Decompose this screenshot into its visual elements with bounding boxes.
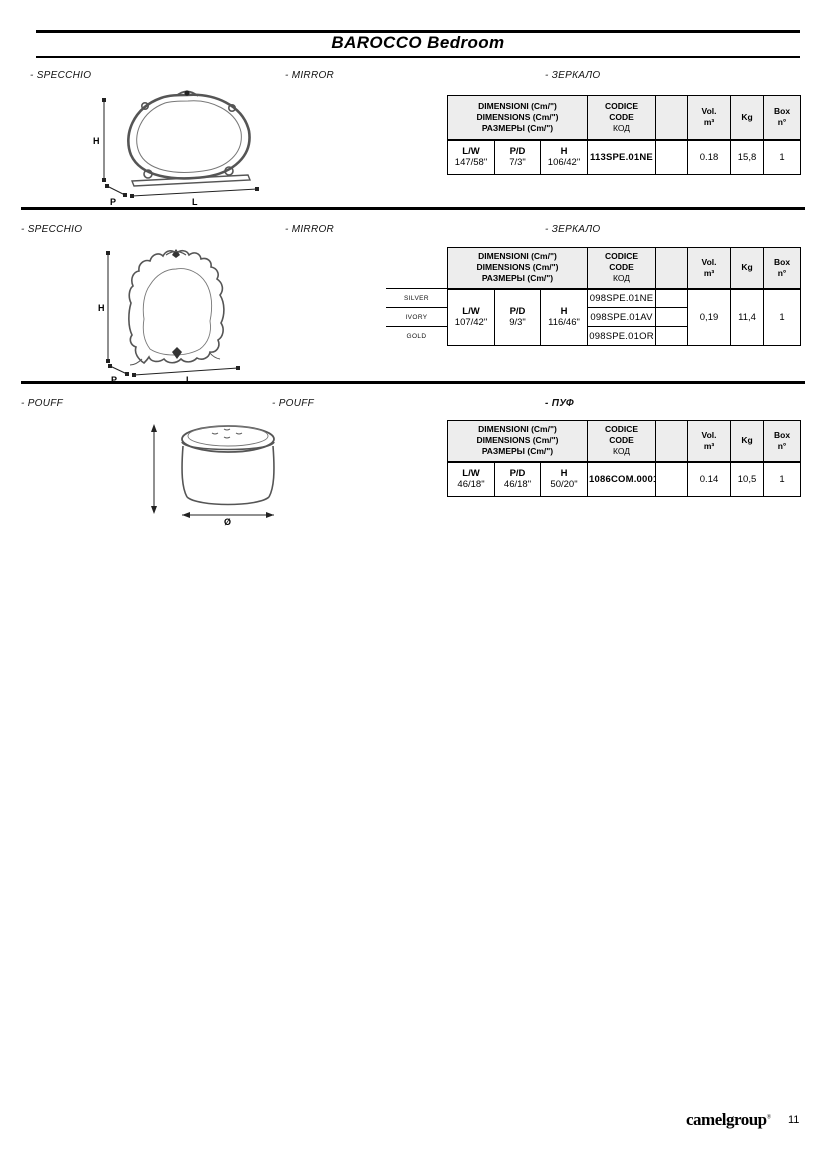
box-header-line: Box [765, 257, 799, 268]
h-label: H [542, 468, 586, 479]
pd-label: P/D [496, 306, 539, 317]
volume-header: Vol. m³ [688, 248, 731, 289]
p-dim-end [108, 364, 112, 368]
code-header-line: CODE [589, 435, 654, 446]
l-dim-end [236, 366, 240, 370]
code-header-line: КОД [589, 123, 654, 134]
h-value: 106/42" [542, 157, 586, 168]
p-dimension-label: P [110, 197, 116, 206]
code-header-line: КОД [589, 446, 654, 457]
volume-header: Vol. m³ [688, 96, 731, 140]
l-dimension-line [132, 189, 257, 196]
box-header: Box n° [764, 248, 801, 289]
section-divider [21, 207, 805, 210]
empty-header-cell [656, 248, 688, 289]
lw-cell: L/W 147/58" [448, 140, 495, 175]
h-value: 50/20" [542, 479, 586, 490]
code-header-line: CODE [589, 112, 654, 123]
volume-header-line: Vol. [689, 106, 729, 117]
mirror-frame-inner [137, 101, 242, 173]
product-code-silver: 098SPE.01NE [588, 289, 656, 308]
pd-cell: P/D 7/3" [495, 140, 541, 175]
pd-label: P/D [496, 146, 539, 157]
code-header-line: CODE [589, 262, 654, 273]
section-divider [21, 381, 805, 384]
h-label: H [542, 306, 586, 317]
mirror-crest-knob [184, 90, 189, 95]
dimensions-header: DIMENSIONI (Cm/") DIMENSIONS (Cm/") РАЗМ… [448, 96, 588, 140]
volume-unit: m³ [689, 268, 729, 279]
h-cell: H 116/46" [541, 289, 588, 346]
section1-label-it: - SPECCHIO [30, 70, 91, 81]
empty-cell [656, 327, 688, 346]
arrow-right [266, 512, 274, 518]
empty-cell [656, 140, 688, 175]
code-header-line: CODICE [589, 101, 654, 112]
h-dimension-label: H [93, 136, 100, 146]
finish-options: SILVER IVORY GOLD [386, 288, 447, 346]
pouff-drawing: Ø [138, 412, 306, 526]
dimensions-header-line: DIMENSIONI (Cm/") [449, 251, 586, 262]
product-code: 1086COM.00011 [588, 462, 656, 497]
pd-value: 7/3" [496, 157, 539, 168]
dimensions-header-line: DIMENSIONS (Cm/") [449, 112, 586, 123]
code-header-line: CODICE [589, 424, 654, 435]
volume-value: 0,19 [688, 289, 731, 346]
dimensions-header-line: РАЗМЕРЫ (Cm/") [449, 123, 586, 134]
box-unit: n° [765, 441, 799, 452]
empty-header-cell [656, 421, 688, 462]
mirror-frame-inner [143, 269, 211, 355]
pouff-button-marks [212, 429, 242, 438]
pouff-top-inner [188, 426, 268, 446]
header-bottom-rule [36, 56, 800, 58]
empty-cell [656, 462, 688, 497]
lw-label: L/W [449, 306, 493, 317]
pd-value: 46/18" [496, 479, 539, 490]
l-dimension-label: L [192, 197, 198, 206]
box-value: 1 [764, 289, 801, 346]
mirror2-drawing: H P L [98, 241, 244, 383]
code-header-line: CODICE [589, 251, 654, 262]
pd-cell: P/D 9/3" [495, 289, 541, 346]
h-label: H [542, 146, 586, 157]
box-unit: n° [765, 117, 799, 128]
box-header-line: Box [765, 430, 799, 441]
arrow-up [151, 424, 157, 432]
mirror-frame-outer [128, 95, 249, 179]
h-dim-end [102, 178, 106, 182]
volume-unit: m³ [689, 117, 729, 128]
mirror-crest-ornament [172, 249, 180, 258]
product-code: 113SPE.01NE [588, 140, 656, 175]
lw-value: 147/58" [449, 157, 493, 168]
lw-value: 46/18" [449, 479, 493, 490]
section1-label-ru: - ЗЕРКАЛО [545, 70, 600, 81]
p-dim-end [105, 184, 109, 188]
h-cell: H 50/20" [541, 462, 588, 497]
volume-value: 0.18 [688, 140, 731, 175]
kg-header: Kg [731, 421, 764, 462]
lw-value: 107/42" [449, 317, 493, 328]
dimensions-header-line: DIMENSIONI (Cm/") [449, 101, 586, 112]
section3-label-it: - POUFF [21, 398, 63, 409]
pouff-bottom [187, 497, 269, 505]
brand-logo-mark: ® [767, 1114, 771, 1120]
section3-label-en: - POUFF [272, 398, 314, 409]
catalog-page: BAROCCO Bedroom - SPECCHIO - MIRROR - ЗЕ… [0, 0, 836, 1170]
lw-label: L/W [449, 468, 493, 479]
code-header: CODICE CODE КОД [588, 96, 656, 140]
p-dimension-line [110, 366, 127, 374]
mirror-base [132, 175, 250, 186]
product-code-ivory: 098SPE.01AV [588, 308, 656, 327]
kg-header: Kg [731, 248, 764, 289]
dimensions-header-line: DIMENSIONI (Cm/") [449, 424, 586, 435]
code-header: CODICE CODE КОД [588, 248, 656, 289]
product-code-gold: 098SPE.01OR [588, 327, 656, 346]
h-dim-end [106, 251, 110, 255]
finish-gold: GOLD [386, 327, 447, 346]
dimensions-header-line: РАЗМЕРЫ (Cm/") [449, 273, 586, 284]
h-dim-end [102, 98, 106, 102]
code-header: CODICE CODE КОД [588, 421, 656, 462]
box-value: 1 [764, 140, 801, 175]
l-dim-end [255, 187, 259, 191]
pouff-sides [182, 446, 274, 497]
mirror-bottom-ornament [172, 347, 182, 359]
l-dimension-line [134, 368, 238, 375]
kg-value: 11,4 [731, 289, 764, 346]
box-value: 1 [764, 462, 801, 497]
dimensions-header: DIMENSIONI (Cm/") DIMENSIONS (Cm/") РАЗМ… [448, 421, 588, 462]
box-header-line: Box [765, 106, 799, 117]
pd-value: 9/3" [496, 317, 539, 328]
section2-label-it: - SPECCHIO [21, 224, 82, 235]
arrow-down [151, 506, 157, 514]
dimensions-header-line: РАЗМЕРЫ (Cm/") [449, 446, 586, 457]
h-cell: H 106/42" [541, 140, 588, 175]
box-header: Box n° [764, 421, 801, 462]
empty-header-cell [656, 96, 688, 140]
section1-label-en: - MIRROR [285, 70, 334, 81]
spec-table-mirror2: DIMENSIONI (Cm/") DIMENSIONS (Cm/") РАЗМ… [447, 247, 801, 346]
empty-cell [656, 308, 688, 327]
h-dim-end [106, 359, 110, 363]
kg-value: 10,5 [731, 462, 764, 497]
kg-header: Kg [731, 96, 764, 140]
h-value: 116/46" [542, 317, 586, 328]
box-header: Box n° [764, 96, 801, 140]
dimensions-header-line: DIMENSIONS (Cm/") [449, 262, 586, 273]
kg-value: 15,8 [731, 140, 764, 175]
code-header-line: КОД [589, 273, 654, 284]
volume-unit: m³ [689, 441, 729, 452]
l-dim-end [130, 194, 134, 198]
pd-cell: P/D 46/18" [495, 462, 541, 497]
dimensions-header: DIMENSIONI (Cm/") DIMENSIONS (Cm/") РАЗМ… [448, 248, 588, 289]
page-number: 11 [788, 1114, 799, 1126]
finish-silver: SILVER [386, 289, 447, 308]
p-dim-end [123, 193, 127, 197]
spec-table-mirror1: DIMENSIONI (Cm/") DIMENSIONS (Cm/") РАЗМ… [447, 95, 801, 175]
p-dim-end [125, 372, 129, 376]
h-dimension-label: H [98, 303, 105, 313]
pd-label: P/D [496, 468, 539, 479]
volume-header: Vol. m³ [688, 421, 731, 462]
mirror1-drawing: H P L [92, 86, 270, 206]
empty-cell [656, 289, 688, 308]
page-title: BAROCCO Bedroom [36, 33, 800, 53]
section2-label-en: - MIRROR [285, 224, 334, 235]
brand-logo-text: camelgroup [686, 1110, 767, 1129]
section2-label-ru: - ЗЕРКАЛО [545, 224, 600, 235]
volume-value: 0.14 [688, 462, 731, 497]
diameter-label: Ø [224, 517, 231, 526]
p-dimension-line [107, 186, 125, 195]
dimensions-header-line: DIMENSIONS (Cm/") [449, 435, 586, 446]
brand-logo: camelgroup® [686, 1110, 771, 1130]
finish-ivory: IVORY [386, 308, 447, 327]
box-unit: n° [765, 268, 799, 279]
l-dim-end [132, 373, 136, 377]
volume-header-line: Vol. [689, 430, 729, 441]
lw-cell: L/W 46/18" [448, 462, 495, 497]
volume-header-line: Vol. [689, 257, 729, 268]
arrow-left [182, 512, 190, 518]
spec-table-pouff: DIMENSIONI (Cm/") DIMENSIONS (Cm/") РАЗМ… [447, 420, 801, 497]
lw-label: L/W [449, 146, 493, 157]
section3-label-ru: - ПУФ [545, 398, 574, 409]
lw-cell: L/W 107/42" [448, 289, 495, 346]
